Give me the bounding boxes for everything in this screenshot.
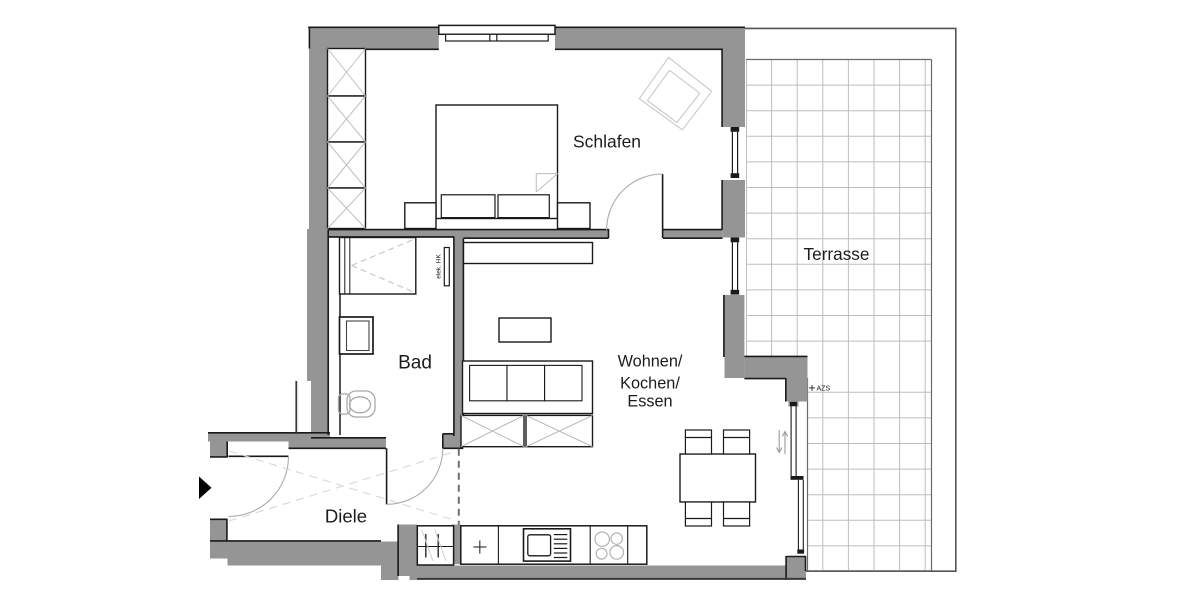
svg-text:AZS: AZS bbox=[817, 386, 831, 393]
svg-text:Schlafen: Schlafen bbox=[573, 132, 641, 152]
svg-text:Terrasse: Terrasse bbox=[804, 244, 870, 264]
svg-text:Diele: Diele bbox=[325, 506, 367, 527]
svg-text:Kochen/: Kochen/ bbox=[620, 375, 680, 393]
svg-text:Wohnen/: Wohnen/ bbox=[618, 353, 683, 371]
svg-text:Essen: Essen bbox=[627, 393, 672, 411]
svg-text:elek. HK: elek. HK bbox=[436, 254, 443, 279]
svg-text:Bad: Bad bbox=[398, 353, 432, 374]
